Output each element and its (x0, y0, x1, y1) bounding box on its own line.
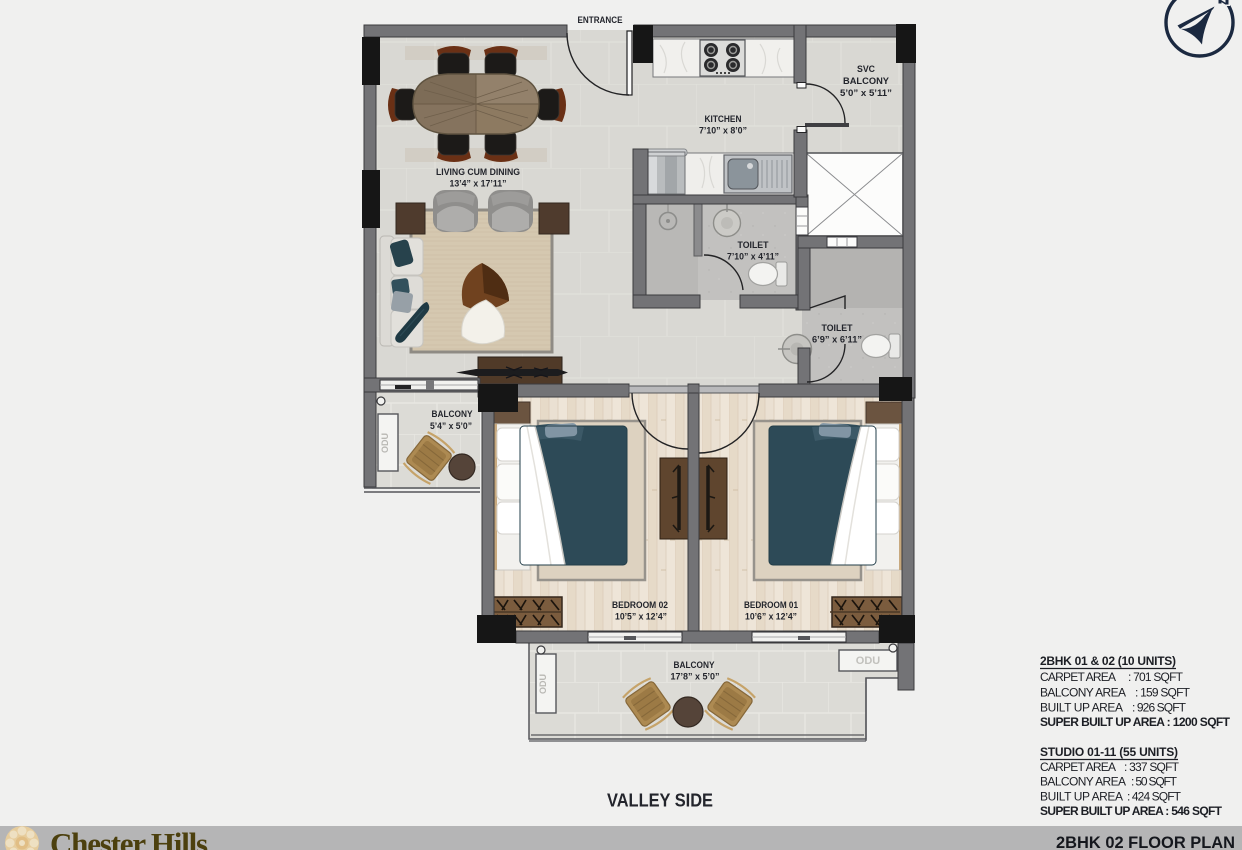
svg-text:BALCONY: BALCONY (843, 76, 889, 86)
svg-text:17’8” x 5’0”: 17’8” x 5’0” (671, 672, 720, 682)
svg-text:: 337 SQFT: : 337 SQFT (1124, 760, 1180, 774)
svg-text:ODU: ODU (856, 655, 881, 667)
svg-text:ENTRANCE: ENTRANCE (578, 15, 623, 25)
svg-text:7’10” x 8’0”: 7’10” x 8’0” (699, 126, 747, 136)
svg-text:BEDROOM 01: BEDROOM 01 (744, 600, 798, 610)
svg-text:5’4” x 5’0”: 5’4” x 5’0” (430, 421, 472, 431)
svg-text:BUILT UP AREA: BUILT UP AREA (1040, 701, 1123, 715)
svg-text:STUDIO 01-11 (55 UNITS): STUDIO 01-11 (55 UNITS) (1040, 745, 1178, 759)
svg-text:13’4” x 17’11”: 13’4” x 17’11” (450, 179, 507, 189)
svg-text:: 701 SQFT: : 701 SQFT (1128, 670, 1184, 684)
svg-text:BALCONY AREA: BALCONY AREA (1040, 686, 1126, 700)
svg-text:: 424 SQFT: : 424 SQFT (1127, 790, 1182, 804)
svg-text:BALCONY: BALCONY (432, 409, 473, 419)
svg-text:CARPET AREA: CARPET AREA (1040, 670, 1116, 684)
svg-text:2BHK 02 FLOOR PLAN: 2BHK 02 FLOOR PLAN (1056, 834, 1235, 850)
svg-text:BALCONY AREA: BALCONY AREA (1040, 775, 1126, 789)
svg-text:SVC: SVC (857, 64, 875, 74)
svg-text:TOILET: TOILET (738, 240, 769, 250)
svg-text:CARPET AREA: CARPET AREA (1040, 760, 1116, 774)
svg-text:KITCHEN: KITCHEN (705, 114, 742, 124)
svg-text:TOILET: TOILET (822, 323, 853, 333)
svg-text:SUPER BUILT UP AREA : 1200 SQF: SUPER BUILT UP AREA : 1200 SQFT (1040, 715, 1231, 729)
svg-text:: 926 SQFT: : 926 SQFT (1132, 701, 1187, 715)
svg-text:10’5” x 12’4”: 10’5” x 12’4” (615, 612, 667, 622)
svg-text:ODU: ODU (380, 433, 390, 453)
svg-text:7’10” x 4’11”: 7’10” x 4’11” (727, 252, 779, 262)
svg-text:: 159 SQFT: : 159 SQFT (1135, 686, 1191, 700)
svg-text:BUILT UP AREA: BUILT UP AREA (1040, 790, 1123, 804)
svg-text:2BHK 01 & 02 (10 UNITS): 2BHK 01 & 02 (10 UNITS) (1040, 654, 1176, 668)
svg-text:BEDROOM 02: BEDROOM 02 (612, 600, 668, 610)
svg-text:VALLEY SIDE: VALLEY SIDE (607, 791, 713, 811)
svg-text:SUPER BUILT UP AREA : 546 SQFT: SUPER BUILT UP AREA : 546 SQFT (1040, 804, 1223, 818)
svg-text:5’0” x 5’11”: 5’0” x 5’11” (840, 88, 892, 98)
svg-text:10’6” x 12’4”: 10’6” x 12’4” (745, 612, 797, 622)
svg-text:Chester Hills: Chester Hills (50, 826, 208, 850)
svg-text:LIVING CUM DINING: LIVING CUM DINING (436, 167, 520, 177)
svg-text:: 50 SQFT: : 50 SQFT (1131, 775, 1178, 789)
svg-text:6’9” x 6’11”: 6’9” x 6’11” (812, 335, 862, 345)
svg-text:BALCONY: BALCONY (674, 660, 715, 670)
svg-text:ODU: ODU (538, 674, 548, 694)
